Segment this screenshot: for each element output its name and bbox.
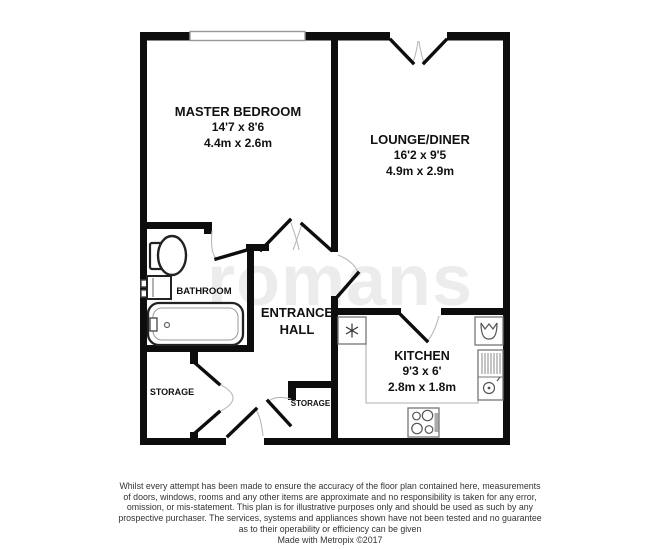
- lounge-diner-metric: 4.9m x 2.9m: [322, 164, 518, 180]
- label-kitchen: KITCHEN 9'3 x 6' 2.8m x 1.8m: [337, 348, 507, 395]
- label-lounge-diner: LOUNGE/DINER 16'2 x 9'5 4.9m x 2.9m: [322, 132, 518, 179]
- bathroom-door-arc: [212, 231, 217, 258]
- disclaimer-line-5: as to their operability or efficiency ca…: [0, 524, 660, 535]
- french-door-arc-right: [419, 41, 424, 63]
- wall-left: [140, 32, 147, 445]
- french-door-leaf-right: [424, 40, 446, 63]
- kitchen-door-leaf: [401, 315, 427, 341]
- master-bedroom-imperial: 14'7 x 8'6: [138, 120, 338, 136]
- wall-bathroom-top-cap: [204, 222, 212, 234]
- floorplan-drawing: [0, 0, 660, 550]
- bedroom-door-leaf-left: [261, 220, 290, 250]
- storage-left-door-leaf-bottom: [195, 412, 219, 433]
- lounge-diner-name: LOUNGE/DINER: [322, 132, 518, 148]
- bathtub-icon: [148, 303, 243, 345]
- wall-bathroom-top: [140, 222, 212, 229]
- label-master-bedroom: MASTER BEDROOM 14'7 x 8'6 4.4m x 2.6m: [138, 104, 338, 151]
- wall-top-mid: [305, 32, 390, 41]
- bedroom-door-leaf-right: [302, 224, 331, 250]
- wall-storage-right-stub: [288, 381, 296, 400]
- french-door-leaf-left: [391, 40, 413, 63]
- disclaimer-line-2: of doors, windows, rooms and any other i…: [0, 492, 660, 503]
- wall-kitchen-right: [441, 308, 503, 315]
- storage-left-door-leaf-top: [195, 363, 219, 384]
- master-bedroom-name: MASTER BEDROOM: [138, 104, 338, 120]
- bedroom-door-arc-right: [293, 224, 302, 250]
- wall-storage-right-top: [290, 381, 338, 388]
- wall-kitchen-left: [338, 308, 401, 315]
- french-door-arc-left: [413, 41, 418, 63]
- storage-left-door-arc-bottom: [219, 398, 233, 412]
- bathroom-door-leaf: [216, 250, 247, 259]
- label-storage-right: STORAGE: [283, 399, 338, 408]
- lounge-door-leaf: [338, 273, 358, 296]
- wall-bathroom-right: [247, 244, 254, 352]
- sink-basin-icon: [475, 317, 503, 345]
- front-door-leaf: [228, 409, 256, 436]
- kitchen-metric: 2.8m x 1.8m: [337, 380, 507, 396]
- wall-top-left: [140, 32, 190, 41]
- freezer-icon: [338, 317, 366, 344]
- lounge-diner-imperial: 16'2 x 9'5: [322, 148, 518, 164]
- kitchen-door-arc: [428, 316, 439, 340]
- label-bathroom: BATHROOM: [159, 286, 249, 297]
- master-bedroom-metric: 4.4m x 2.6m: [138, 136, 338, 152]
- storage-left-door-arc-top: [219, 384, 233, 398]
- front-door-arc: [256, 410, 263, 436]
- disclaimer-line-3: omission, or mis-statement. This plan is…: [0, 502, 660, 513]
- credit-line: Made with Metropix ©2017: [0, 535, 660, 546]
- floorplan-page: romans: [0, 0, 660, 550]
- disclaimer: Whilst every attempt has been made to en…: [0, 481, 660, 545]
- label-entrance-hall: ENTRANCE HALL: [257, 304, 337, 338]
- disclaimer-line-4: prospective purchaser. The services, sys…: [0, 513, 660, 524]
- kitchen-name: KITCHEN: [337, 348, 507, 364]
- wall-bottom-right: [264, 438, 510, 445]
- hob-handle: [435, 413, 439, 432]
- label-storage-left: STORAGE: [142, 387, 202, 397]
- hob-icon: [408, 408, 439, 437]
- wall-bottom-left: [140, 438, 226, 445]
- lounge-door-arc: [338, 255, 358, 272]
- wall-storage-stub-top: [190, 345, 198, 364]
- window-master-bedroom: [190, 32, 305, 41]
- toilet-icon: [150, 236, 186, 275]
- wall-top-right: [447, 32, 510, 41]
- kitchen-imperial: 9'3 x 6': [337, 364, 507, 380]
- disclaimer-line-1: Whilst every attempt has been made to en…: [0, 481, 660, 492]
